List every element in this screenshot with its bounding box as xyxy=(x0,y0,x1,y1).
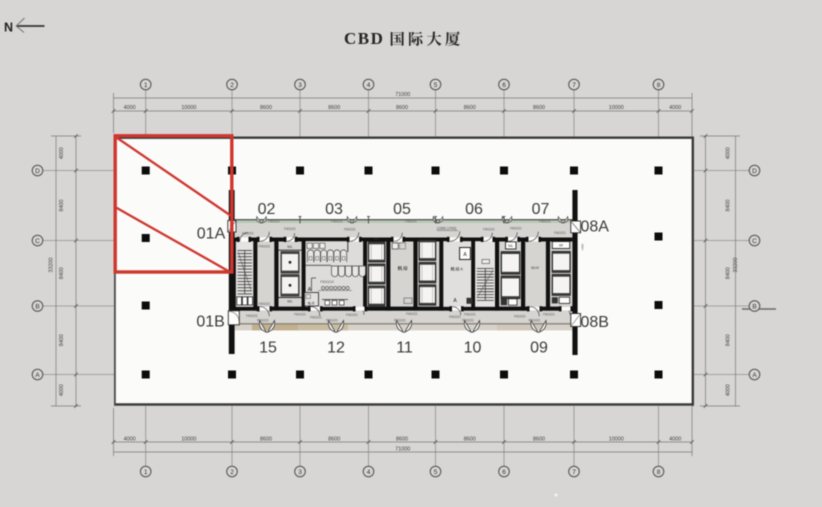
svg-text:4000: 4000 xyxy=(59,147,65,159)
svg-text:B: B xyxy=(35,303,39,310)
svg-text:4000: 4000 xyxy=(726,147,732,159)
svg-text:33200: 33200 xyxy=(733,258,739,273)
svg-text:FM1021: FM1021 xyxy=(529,319,541,323)
svg-text:1: 1 xyxy=(144,82,148,89)
svg-text:05: 05 xyxy=(393,201,411,218)
svg-text:C: C xyxy=(35,238,40,245)
svg-text:10000: 10000 xyxy=(181,105,196,111)
svg-text:71000: 71000 xyxy=(395,92,410,98)
svg-text:FM1021: FM1021 xyxy=(246,314,258,318)
svg-text:FM1021: FM1021 xyxy=(449,315,461,319)
svg-text:2: 2 xyxy=(230,469,234,476)
svg-text:D: D xyxy=(35,168,40,175)
svg-text:B#J#: B#J# xyxy=(531,266,539,270)
svg-text:FM1021: FM1021 xyxy=(462,319,474,323)
svg-text:FM1021: FM1021 xyxy=(310,316,322,320)
svg-text:01B: 01B xyxy=(196,314,224,331)
svg-text:8600: 8600 xyxy=(533,105,545,111)
svg-text:09: 09 xyxy=(530,340,548,357)
svg-text:FM1021: FM1021 xyxy=(259,245,271,249)
svg-text:10000: 10000 xyxy=(609,105,624,111)
svg-text:8400: 8400 xyxy=(726,200,732,212)
svg-text:FM1021: FM1021 xyxy=(284,227,296,231)
svg-text:08A: 08A xyxy=(581,218,610,235)
svg-text:A: A xyxy=(35,372,40,379)
svg-text:4000: 4000 xyxy=(726,384,732,396)
svg-text:A: A xyxy=(752,372,757,379)
svg-text:C: C xyxy=(752,238,757,245)
svg-text:4: 4 xyxy=(367,469,371,476)
svg-text:8600: 8600 xyxy=(328,436,340,442)
svg-text:4000: 4000 xyxy=(59,384,65,396)
svg-text:4000: 4000 xyxy=(124,105,136,111)
svg-text:5: 5 xyxy=(434,82,438,89)
svg-text:8400: 8400 xyxy=(59,334,65,346)
svg-text:1800: 1800 xyxy=(581,243,585,250)
svg-text:FM1021: FM1021 xyxy=(259,302,271,306)
svg-text:4000: 4000 xyxy=(669,105,681,111)
svg-text:12: 12 xyxy=(327,340,345,357)
svg-text:02: 02 xyxy=(258,201,276,218)
svg-text:6: 6 xyxy=(502,469,506,476)
svg-text:FM1021: FM1021 xyxy=(405,220,417,224)
svg-text:(1550,1700): (1550,1700) xyxy=(437,227,456,231)
svg-text:8600: 8600 xyxy=(396,105,408,111)
svg-text:FM1021: FM1021 xyxy=(268,220,280,224)
svg-text:01A: 01A xyxy=(197,226,226,243)
svg-text:6: 6 xyxy=(502,82,506,89)
svg-text:7: 7 xyxy=(572,82,576,89)
svg-text:8600: 8600 xyxy=(464,436,476,442)
svg-text:1: 1 xyxy=(144,469,148,476)
svg-text:10000: 10000 xyxy=(181,436,196,442)
svg-text:4000: 4000 xyxy=(669,436,681,442)
svg-text:FM1021: FM1021 xyxy=(539,220,551,224)
svg-text:N/L: N/L xyxy=(287,245,292,249)
svg-text:FM1021: FM1021 xyxy=(344,228,356,232)
svg-text:N: N xyxy=(4,21,13,35)
svg-text:8: 8 xyxy=(657,469,661,476)
svg-text:##: ## xyxy=(559,244,563,248)
svg-text:03: 03 xyxy=(325,201,343,218)
svg-text:FM1021: FM1021 xyxy=(514,315,526,319)
svg-text:8400: 8400 xyxy=(726,334,732,346)
svg-text:FM1021: FM1021 xyxy=(331,220,343,224)
svg-text:3: 3 xyxy=(298,469,302,476)
svg-text:FM1021: FM1021 xyxy=(483,228,495,232)
svg-text:06: 06 xyxy=(465,201,483,218)
svg-text:7: 7 xyxy=(572,469,576,476)
svg-text:08B: 08B xyxy=(581,314,609,331)
svg-text:10: 10 xyxy=(464,340,482,357)
svg-text:FM1021: FM1021 xyxy=(242,232,254,236)
svg-text:2: 2 xyxy=(230,82,234,89)
svg-text:4: 4 xyxy=(367,82,371,89)
svg-text:FM1021: FM1021 xyxy=(326,319,338,323)
svg-text:CBD: CBD xyxy=(344,29,384,48)
svg-text:FM1021: FM1021 xyxy=(394,319,406,323)
svg-text:8400: 8400 xyxy=(59,200,65,212)
svg-text:15: 15 xyxy=(259,340,277,357)
svg-text:A: A xyxy=(460,266,463,271)
svg-text:8600: 8600 xyxy=(328,105,340,111)
svg-text:FM1021: FM1021 xyxy=(510,227,522,231)
svg-text:N/L: N/L xyxy=(287,300,292,304)
svg-text:8400: 8400 xyxy=(59,267,65,279)
svg-text:FM1021: FM1021 xyxy=(257,319,269,323)
svg-text:8600: 8600 xyxy=(396,436,408,442)
svg-text:5: 5 xyxy=(434,469,438,476)
svg-text:8600: 8600 xyxy=(260,436,272,442)
svg-text:D: D xyxy=(752,168,757,175)
svg-text:N/L: N/L xyxy=(508,244,513,248)
svg-text:8600: 8600 xyxy=(533,436,545,442)
svg-text:71000: 71000 xyxy=(395,446,410,452)
svg-text:8: 8 xyxy=(657,82,661,89)
svg-text:33200: 33200 xyxy=(49,258,55,273)
svg-text:FM1021: FM1021 xyxy=(464,313,476,317)
svg-text:FM1021: FM1021 xyxy=(406,312,418,316)
svg-text:FM1021: FM1021 xyxy=(294,313,306,317)
svg-text:3: 3 xyxy=(298,82,302,89)
svg-text:07: 07 xyxy=(532,201,550,218)
svg-text:FM1021: FM1021 xyxy=(554,231,566,235)
svg-text:N/L: N/L xyxy=(374,237,379,241)
svg-text:FM1021: FM1021 xyxy=(346,313,358,317)
svg-text:FM1021: FM1021 xyxy=(543,313,555,317)
svg-text:FM1021#: FM1021# xyxy=(320,280,334,284)
svg-text:8600: 8600 xyxy=(260,105,272,111)
svg-text:8400: 8400 xyxy=(726,267,732,279)
svg-text:4000: 4000 xyxy=(124,436,136,442)
svg-text:8600: 8600 xyxy=(464,105,476,111)
svg-text:B: B xyxy=(752,303,756,310)
svg-text:10000: 10000 xyxy=(609,436,624,442)
svg-text:11: 11 xyxy=(396,340,413,357)
